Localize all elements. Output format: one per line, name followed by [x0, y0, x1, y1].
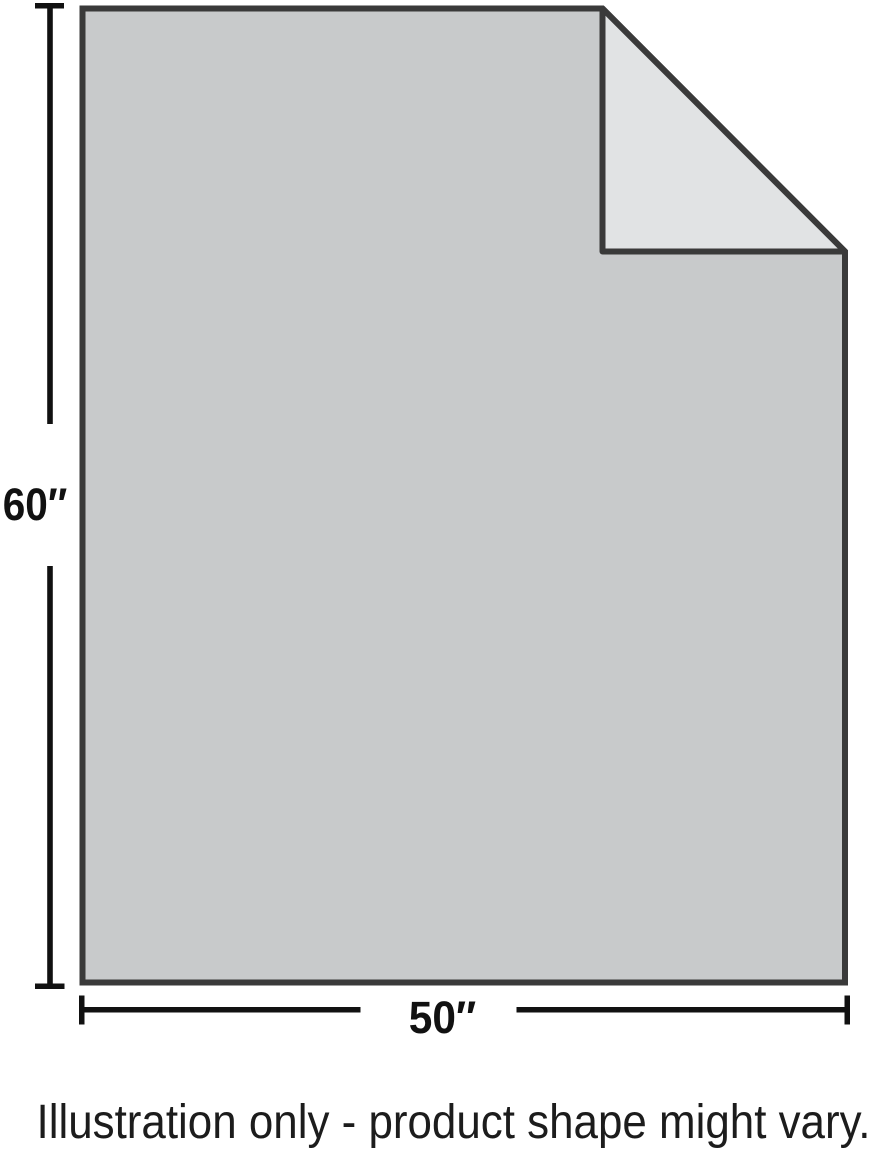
- svg-text:50″: 50″: [409, 992, 477, 1043]
- svg-text:Illustration only - product sh: Illustration only - product shape might …: [37, 1096, 871, 1149]
- svg-text:60″: 60″: [3, 479, 68, 530]
